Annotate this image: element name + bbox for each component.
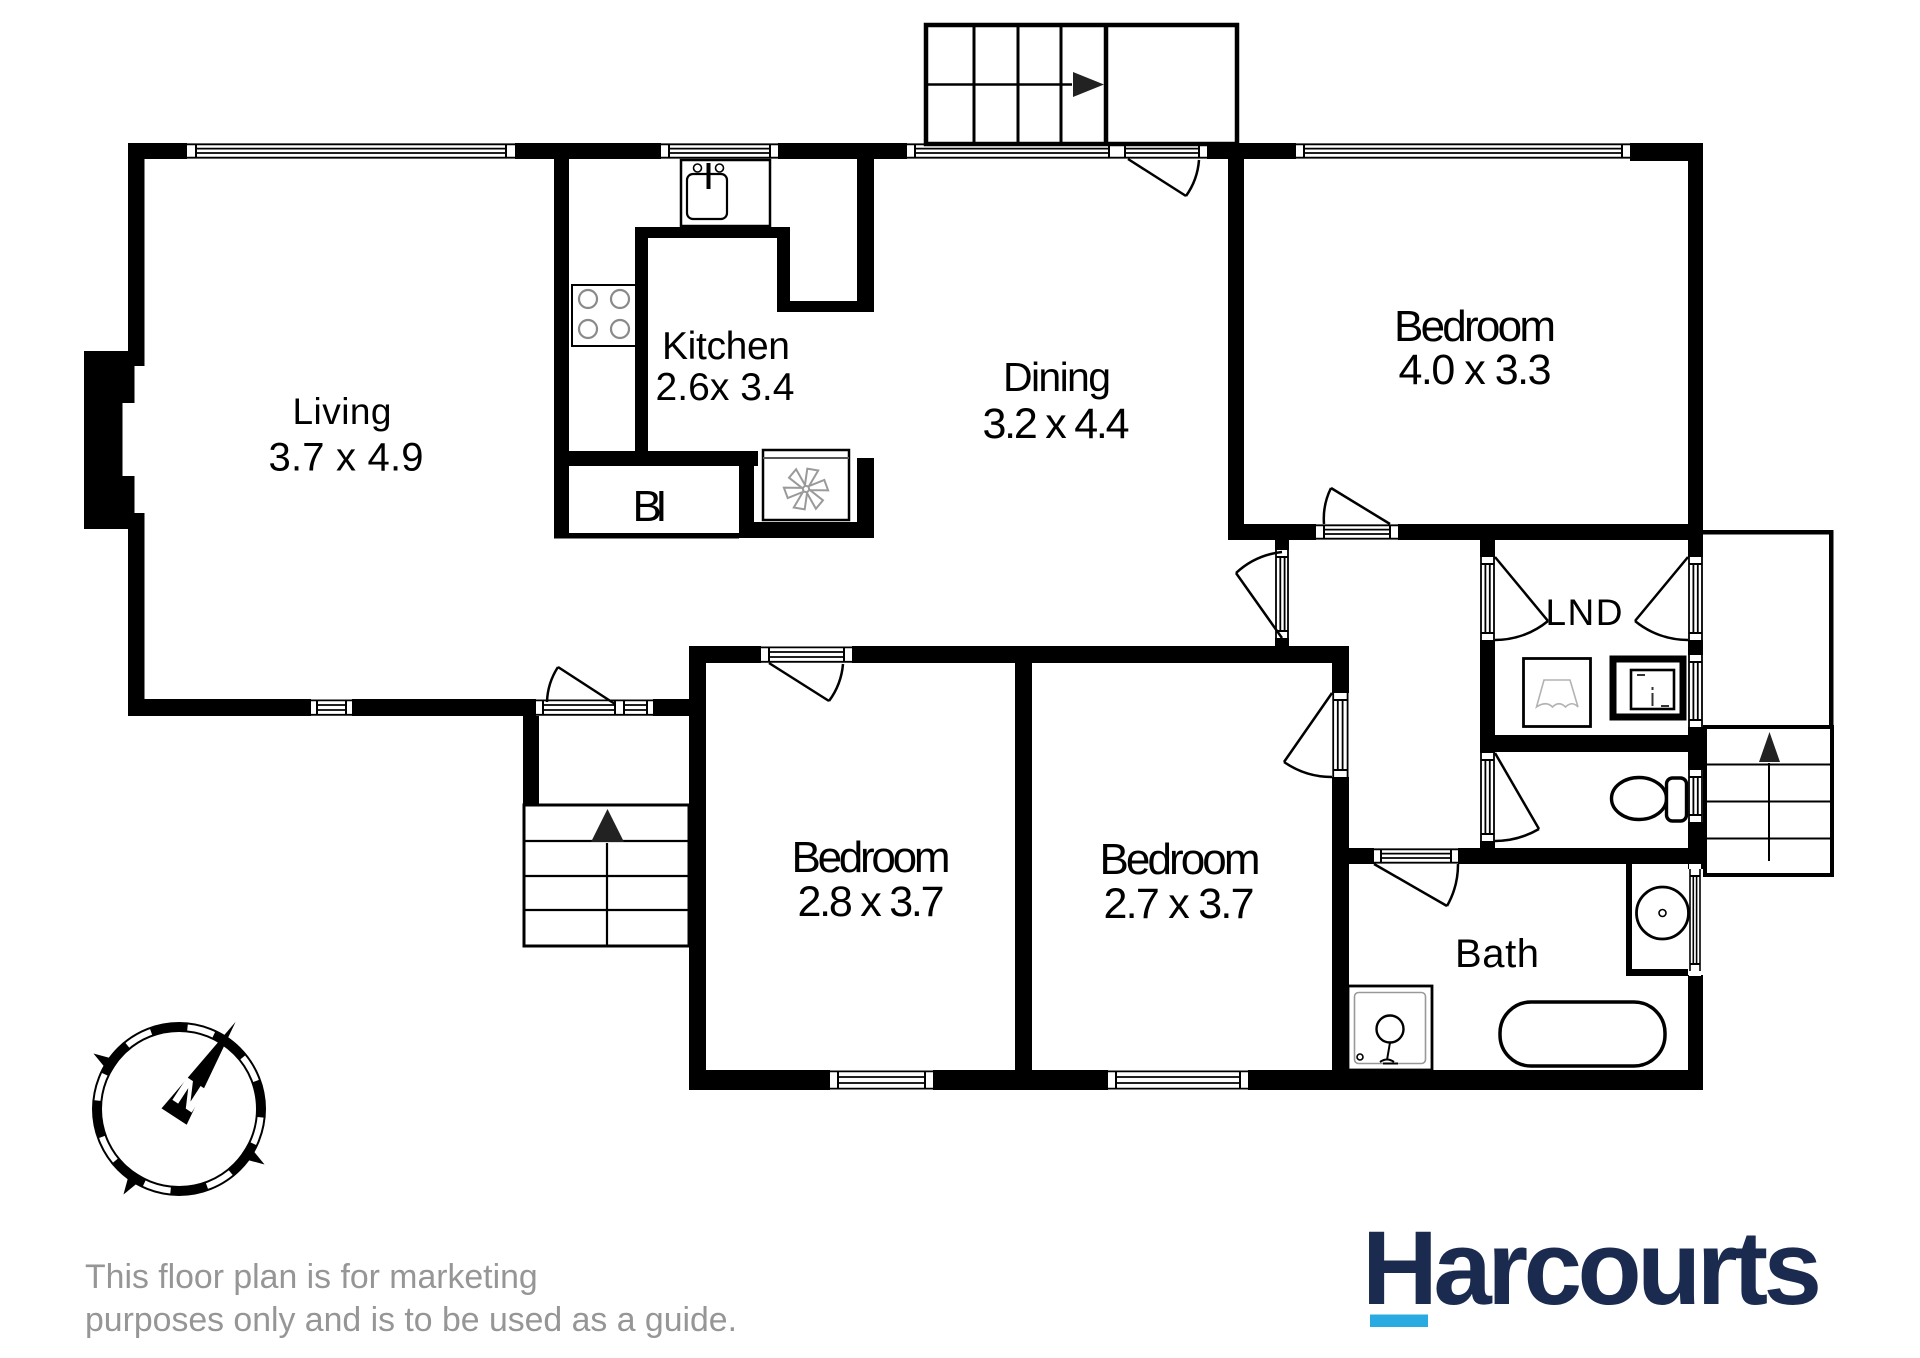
svg-text:4.0 x 3.3: 4.0 x 3.3 [1399,346,1552,394]
svg-text:purposes only and is to be use: purposes only and is to be used as a gui… [85,1301,737,1339]
svg-text:Bedroom: Bedroom [1394,302,1556,351]
svg-text:2.8 x 3.7: 2.8 x 3.7 [798,878,945,926]
svg-text:Kitchen: Kitchen [662,325,790,368]
svg-text:2.7 x 3.7: 2.7 x 3.7 [1104,880,1255,928]
svg-text:LND: LND [1546,592,1623,633]
svg-text:Living: Living [293,391,392,432]
svg-text:This floor plan is for marketi: This floor plan is for marketing [85,1258,538,1296]
svg-text:3.7 x 4.9: 3.7 x 4.9 [269,436,424,480]
svg-text:Bedroom: Bedroom [1100,835,1261,884]
svg-text:2.6x 3.4: 2.6x 3.4 [656,366,795,409]
svg-text:Harcourts: Harcourts [1362,1210,1819,1327]
svg-text:Dining: Dining [1003,354,1111,400]
svg-text:3.2 x 4.4: 3.2 x 4.4 [983,400,1130,448]
svg-text:Bath: Bath [1455,932,1539,976]
svg-text:Bedroom: Bedroom [792,833,951,882]
svg-text:BI: BI [633,482,668,531]
